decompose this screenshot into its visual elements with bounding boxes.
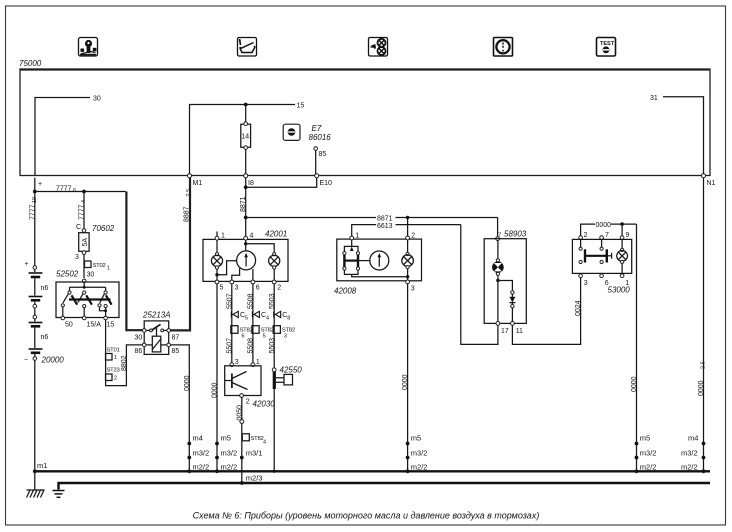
- svg-text:n6: n6: [41, 334, 49, 341]
- svg-text:87: 87: [172, 335, 180, 342]
- svg-text:0050: 0050: [236, 405, 243, 421]
- svg-text:42008: 42008: [334, 287, 357, 296]
- svg-text:6613: 6613: [377, 223, 393, 230]
- svg-text:5: 5: [263, 334, 266, 340]
- svg-text:1: 1: [221, 233, 225, 240]
- svg-text:17: 17: [501, 328, 509, 335]
- svg-text:58903: 58903: [504, 230, 527, 239]
- svg-text:8: 8: [287, 316, 290, 322]
- svg-text:m2/3: m2/3: [246, 474, 263, 483]
- svg-text:2.5: 2.5: [701, 361, 707, 369]
- svg-text:C: C: [76, 224, 81, 231]
- svg-text:m3/1: m3/1: [246, 449, 263, 458]
- svg-text:6: 6: [242, 334, 245, 340]
- svg-text:M1: M1: [193, 180, 203, 187]
- svg-text:5A: 5A: [82, 238, 89, 247]
- svg-text:TEST: TEST: [600, 41, 615, 47]
- svg-text:ST02: ST02: [93, 263, 106, 269]
- svg-text:42550: 42550: [280, 366, 303, 375]
- svg-text:6: 6: [256, 285, 260, 292]
- svg-text:85: 85: [319, 151, 327, 158]
- svg-text:ST82: ST82: [251, 436, 264, 442]
- svg-text:4: 4: [266, 316, 269, 322]
- svg-text:70602: 70602: [92, 224, 115, 233]
- svg-text:m1: m1: [37, 461, 47, 470]
- svg-text:86: 86: [135, 348, 143, 355]
- svg-text:5508: 5508: [248, 338, 255, 354]
- svg-text:15: 15: [297, 103, 305, 110]
- svg-text:7: 7: [605, 232, 609, 239]
- svg-text:N1: N1: [707, 180, 716, 187]
- svg-text:6: 6: [73, 188, 76, 194]
- svg-text:7777: 7777: [79, 204, 86, 220]
- svg-text:25213A: 25213A: [142, 311, 171, 320]
- svg-text:0000: 0000: [596, 222, 612, 229]
- svg-text:8871: 8871: [240, 196, 247, 212]
- svg-text:8802: 8802: [121, 355, 128, 371]
- svg-text:1: 1: [107, 266, 110, 272]
- svg-text:4: 4: [250, 233, 254, 240]
- svg-text:ST01: ST01: [107, 348, 120, 354]
- svg-text:m3/2: m3/2: [411, 449, 428, 458]
- svg-text:85: 85: [172, 348, 180, 355]
- svg-text:15/A: 15/A: [87, 322, 102, 329]
- svg-text:5508: 5508: [248, 293, 255, 309]
- svg-text:ST23: ST23: [107, 368, 121, 374]
- svg-text:9: 9: [626, 232, 630, 239]
- svg-text:3: 3: [284, 334, 287, 340]
- svg-text:50: 50: [65, 322, 73, 329]
- svg-text:m5: m5: [221, 434, 231, 443]
- svg-text:n6: n6: [41, 285, 49, 292]
- svg-text:m4: m4: [193, 434, 203, 443]
- svg-text:8887: 8887: [184, 206, 191, 222]
- svg-text:+: +: [38, 181, 42, 188]
- svg-text:75000: 75000: [19, 59, 42, 68]
- svg-text:3: 3: [235, 285, 239, 292]
- svg-text:5: 5: [245, 316, 248, 322]
- svg-text:0024: 0024: [575, 300, 582, 316]
- svg-text:3: 3: [75, 254, 79, 261]
- svg-text:2.5: 2.5: [186, 189, 192, 197]
- svg-text:0000: 0000: [212, 382, 219, 398]
- svg-text:3: 3: [235, 359, 239, 366]
- svg-text:I8: I8: [248, 180, 254, 187]
- svg-text:m3/2: m3/2: [681, 449, 698, 458]
- svg-text:2: 2: [246, 399, 250, 406]
- svg-text:5503: 5503: [269, 293, 276, 309]
- svg-text:1: 1: [256, 359, 260, 366]
- svg-text:3: 3: [584, 280, 588, 287]
- svg-text:30: 30: [135, 335, 143, 342]
- svg-text:Схема № 6: Приборы (уровень мо: Схема № 6: Приборы (уровень моторного ма…: [193, 511, 540, 521]
- svg-text:0000: 0000: [631, 376, 638, 392]
- svg-text:4: 4: [81, 200, 87, 203]
- svg-text:3: 3: [411, 286, 415, 293]
- svg-text:E7: E7: [312, 124, 322, 133]
- svg-text:1: 1: [114, 355, 117, 361]
- svg-text:m5: m5: [411, 434, 421, 443]
- svg-text:m3/2: m3/2: [640, 449, 657, 458]
- svg-text:7777: 7777: [56, 185, 72, 192]
- svg-text:7777: 7777: [29, 204, 36, 220]
- svg-text:11: 11: [516, 328, 523, 335]
- svg-text:5503: 5503: [269, 338, 276, 354]
- svg-text:−: −: [24, 357, 28, 364]
- svg-text:4: 4: [263, 440, 266, 446]
- svg-text:86016: 86016: [309, 133, 332, 142]
- svg-text:0000: 0000: [402, 374, 409, 390]
- svg-text:15: 15: [107, 322, 115, 329]
- svg-text:m4: m4: [688, 434, 698, 443]
- svg-text:+: +: [25, 261, 29, 268]
- svg-text:2: 2: [114, 376, 117, 382]
- svg-text:5: 5: [220, 285, 224, 292]
- svg-text:30: 30: [87, 272, 95, 279]
- svg-text:m3/2: m3/2: [221, 449, 238, 458]
- svg-text:E10: E10: [320, 180, 333, 187]
- svg-text:2: 2: [277, 285, 281, 292]
- svg-text:42030: 42030: [253, 400, 276, 409]
- svg-text:20000: 20000: [41, 356, 65, 365]
- svg-text:m5: m5: [640, 434, 650, 443]
- svg-text:0000: 0000: [184, 375, 191, 391]
- svg-text:30: 30: [93, 96, 101, 103]
- svg-text:m3/2: m3/2: [193, 449, 210, 458]
- svg-text:8871: 8871: [377, 216, 393, 223]
- svg-text:1: 1: [355, 232, 359, 239]
- svg-text:2: 2: [411, 232, 415, 239]
- svg-text:0000: 0000: [698, 380, 705, 396]
- svg-text:2: 2: [584, 232, 588, 239]
- svg-text:5507: 5507: [226, 338, 233, 354]
- svg-text:53000: 53000: [608, 286, 631, 295]
- svg-text:14: 14: [241, 134, 249, 141]
- svg-text:42001: 42001: [265, 230, 287, 239]
- svg-text:5507: 5507: [226, 293, 233, 309]
- svg-text:52502: 52502: [56, 270, 79, 279]
- svg-text:31: 31: [650, 95, 658, 102]
- svg-text:10: 10: [32, 197, 38, 203]
